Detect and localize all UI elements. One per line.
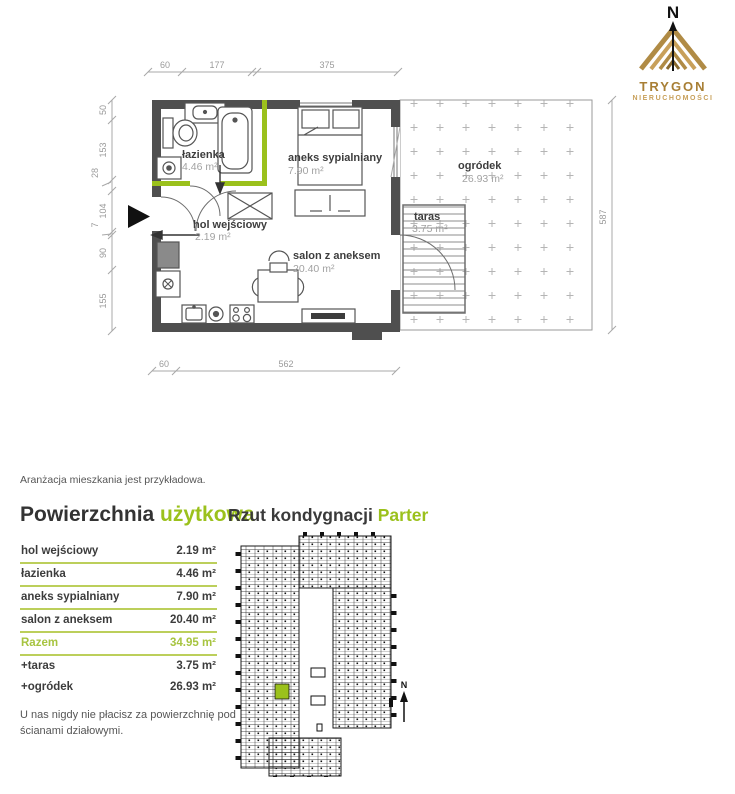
floor-section-title-accent: Parter [378, 505, 429, 525]
room-area-terrace: 3.75 m² [412, 223, 448, 235]
svg-text:60: 60 [160, 60, 170, 70]
site-marker [389, 698, 393, 707]
building-footprint-plan: N [233, 532, 418, 777]
mini-compass: N [400, 680, 408, 722]
row-label: salon z aneksem [21, 614, 112, 626]
svg-text:562: 562 [278, 359, 293, 369]
svg-text:587: 587 [598, 209, 608, 224]
room-area-bedroom: 7.90 m² [288, 165, 324, 177]
svg-text:153: 153 [98, 142, 108, 157]
entrance-marker-icon [128, 205, 150, 228]
table-row: salon z aneksem 20.40 m² [20, 610, 217, 633]
highlighted-unit [275, 684, 289, 699]
room-label-terrace: taras [414, 211, 440, 223]
row-value: 4.46 m² [176, 568, 216, 580]
room-label-bathroom: łazienka [182, 149, 226, 161]
kitchen-sink-icon [182, 305, 206, 323]
svg-text:50: 50 [98, 105, 108, 115]
area-table-title: Powierzchnia użytkowa [20, 503, 255, 527]
row-label: aneks sypialniany [21, 591, 119, 603]
toilet-icon [163, 118, 197, 148]
svg-text:7: 7 [90, 222, 100, 227]
floor-section-title: Rzut kondygnacji Parter [228, 505, 428, 526]
window-right [391, 127, 400, 177]
room-label-hall: hol wejściowy [193, 219, 268, 231]
table-row: +taras 3.75 m² [20, 656, 217, 677]
row-label: Razem [21, 637, 58, 649]
kitchen-round-fixture [209, 307, 223, 321]
entrance-opening [152, 197, 161, 231]
terrace-door-opening [391, 235, 400, 290]
bathtub-icon [218, 107, 252, 173]
stove-icon [230, 305, 254, 323]
table-row: +ogródek 26.93 m² [20, 677, 217, 698]
apartment-floorplan: łazienka 4.46 m² aneks sypialniany 7.90 … [90, 45, 650, 395]
row-label: +taras [21, 660, 55, 672]
floor-section-title-main: Rzut kondygnacji [228, 505, 373, 525]
no-pay-walls-note: U nas nigdy nie płacisz za powierzchnię … [20, 708, 252, 740]
row-value: 34.95 m² [170, 637, 216, 649]
building-wings [241, 536, 391, 776]
room-area-hall: 2.19 m² [195, 231, 231, 243]
room-area-garden: 26.93 m² [462, 173, 504, 185]
fridge-icon [156, 271, 180, 297]
table-row: łazienka 4.46 m² [20, 564, 217, 587]
wall-step [352, 332, 382, 340]
row-label: hol wejściowy [21, 545, 98, 557]
row-value: 26.93 m² [170, 681, 216, 693]
table-row: hol wejściowy 2.19 m² [20, 541, 217, 564]
area-table: hol wejściowy 2.19 m² łazienka 4.46 m² a… [20, 541, 217, 698]
row-label: łazienka [21, 568, 66, 580]
svg-text:60: 60 [159, 359, 169, 369]
svg-text:155: 155 [98, 293, 108, 308]
courtyard-structures [311, 668, 325, 731]
washing-machine-icon [157, 157, 181, 179]
row-value: 7.90 m² [176, 591, 216, 603]
tv-bench-icon [302, 309, 355, 323]
row-value: 3.75 m² [176, 660, 216, 672]
bed-bench-icon [295, 190, 365, 216]
area-table-title-main: Powierzchnia [20, 503, 154, 526]
table-row-total: Razem 34.95 m² [20, 633, 217, 656]
room-label-bedroom: aneks sypialniany [288, 152, 383, 164]
svg-text:28: 28 [90, 168, 100, 178]
svg-text:N: N [401, 680, 408, 690]
table-row: aneks sypialniany 7.90 m² [20, 587, 217, 610]
floorplan-page: N TRYGON NIERUCHOMOŚCI [0, 0, 735, 794]
row-value: 2.19 m² [176, 545, 216, 557]
arrangement-note: Aranżacja mieszkania jest przykładowa. [20, 474, 206, 486]
row-value: 20.40 m² [170, 614, 216, 626]
room-label-livingroom: salon z aneksem [293, 250, 381, 262]
wardrobe-icon [228, 193, 272, 219]
svg-text:177: 177 [209, 60, 224, 70]
room-area-livingroom: 20.40 m² [293, 263, 335, 275]
logo-compass-n: N [619, 4, 727, 21]
svg-text:375: 375 [319, 60, 334, 70]
room-label-garden: ogródek [458, 160, 502, 172]
svg-text:90: 90 [98, 248, 108, 258]
svg-text:104: 104 [98, 203, 108, 218]
row-label: +ogródek [21, 681, 73, 693]
kitchen-tall-cabinet [157, 242, 179, 268]
room-area-bathroom: 4.46 m² [182, 161, 218, 173]
